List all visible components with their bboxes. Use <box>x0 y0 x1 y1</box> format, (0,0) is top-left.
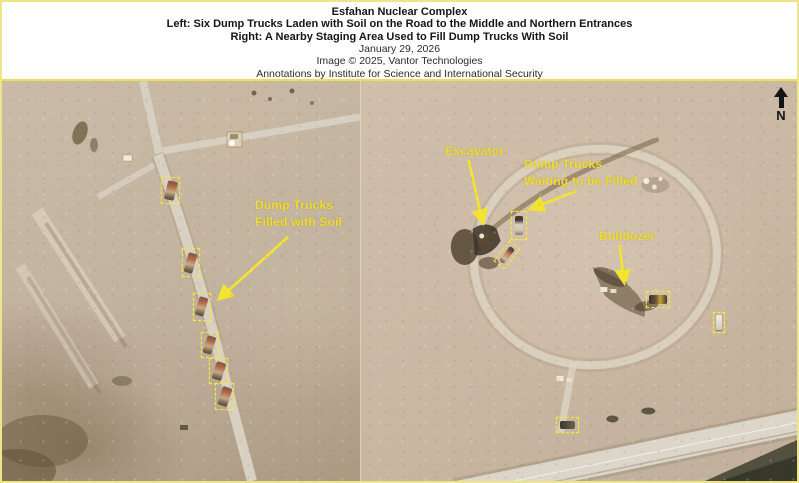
annotation-box-dozer <box>646 291 670 308</box>
annotation-box-vehicle-dark <box>556 417 579 433</box>
road-southwest <box>98 165 154 197</box>
annotation-box-truck <box>182 248 200 277</box>
road-north <box>143 81 159 153</box>
annotation-box-truck <box>215 383 234 410</box>
annotation-credit: Annotations by Institute for Science and… <box>2 68 797 80</box>
excavator-arrow <box>469 160 483 223</box>
annotation-box-truck <box>209 358 228 384</box>
caption-left-image: Left: Six Dump Trucks Laden with Soil on… <box>2 18 797 30</box>
vehicle <box>195 296 209 317</box>
figure-title: Esfahan Nuclear Complex <box>2 6 797 18</box>
satellite-figure: Esfahan Nuclear Complex Left: Six Dump T… <box>0 0 799 483</box>
bulldozer-label: Bulldozer <box>599 228 655 245</box>
vehicle <box>515 216 523 236</box>
caption-right-image: Right: A Nearby Staging Area Used to Fil… <box>2 31 797 43</box>
image-date: January 29, 2026 <box>2 43 797 55</box>
annotation-box-truck-v <box>511 211 527 240</box>
dump-trucks-arrow <box>219 237 288 299</box>
vehicle <box>649 295 667 303</box>
vehicle <box>560 421 575 428</box>
dump-trucks-waiting-label: Dump Trucks Waiting to be Filled <box>524 156 638 189</box>
image-credit: Image © 2025, Vantor Technologies <box>2 55 797 67</box>
vehicle <box>716 315 722 329</box>
dark-vehicle <box>180 425 188 430</box>
north-label: N <box>771 109 791 122</box>
right-satellite-image: Excavator Dump Trucks Waiting to be Fill… <box>360 81 797 481</box>
north-arrow: N <box>771 87 791 122</box>
north-arrow-shaft <box>779 97 784 108</box>
label-line: Dump Trucks <box>524 156 638 173</box>
header-divider <box>2 79 797 81</box>
vehicle <box>217 386 232 407</box>
annotation-box-truck <box>201 332 219 358</box>
north-arrow-icon <box>774 87 788 97</box>
left-terrain-graphic <box>2 81 360 481</box>
vehicle <box>211 361 226 381</box>
image-pair: Dump Trucks Filled with Soil <box>2 81 797 481</box>
excavator-label: Excavator <box>445 143 504 160</box>
white-vehicle <box>123 155 132 161</box>
right-terrain-graphic <box>361 81 797 481</box>
left-satellite-image: Dump Trucks Filled with Soil <box>2 81 360 481</box>
annotation-box-vehicle-white <box>713 312 725 333</box>
figure-caption: Esfahan Nuclear Complex Left: Six Dump T… <box>2 2 797 79</box>
label-line: Filled with Soil <box>255 214 342 231</box>
label-line: Dump Trucks <box>255 197 342 214</box>
road-east <box>162 117 360 151</box>
annotation-box-truck <box>161 177 180 204</box>
label-line: Waiting to be Filled <box>524 173 638 190</box>
vehicle <box>184 252 198 274</box>
vehicle <box>163 180 177 200</box>
annotation-box-truck <box>193 293 211 321</box>
dump-trucks-filled-label: Dump Trucks Filled with Soil <box>255 197 342 230</box>
vehicle <box>203 335 217 355</box>
